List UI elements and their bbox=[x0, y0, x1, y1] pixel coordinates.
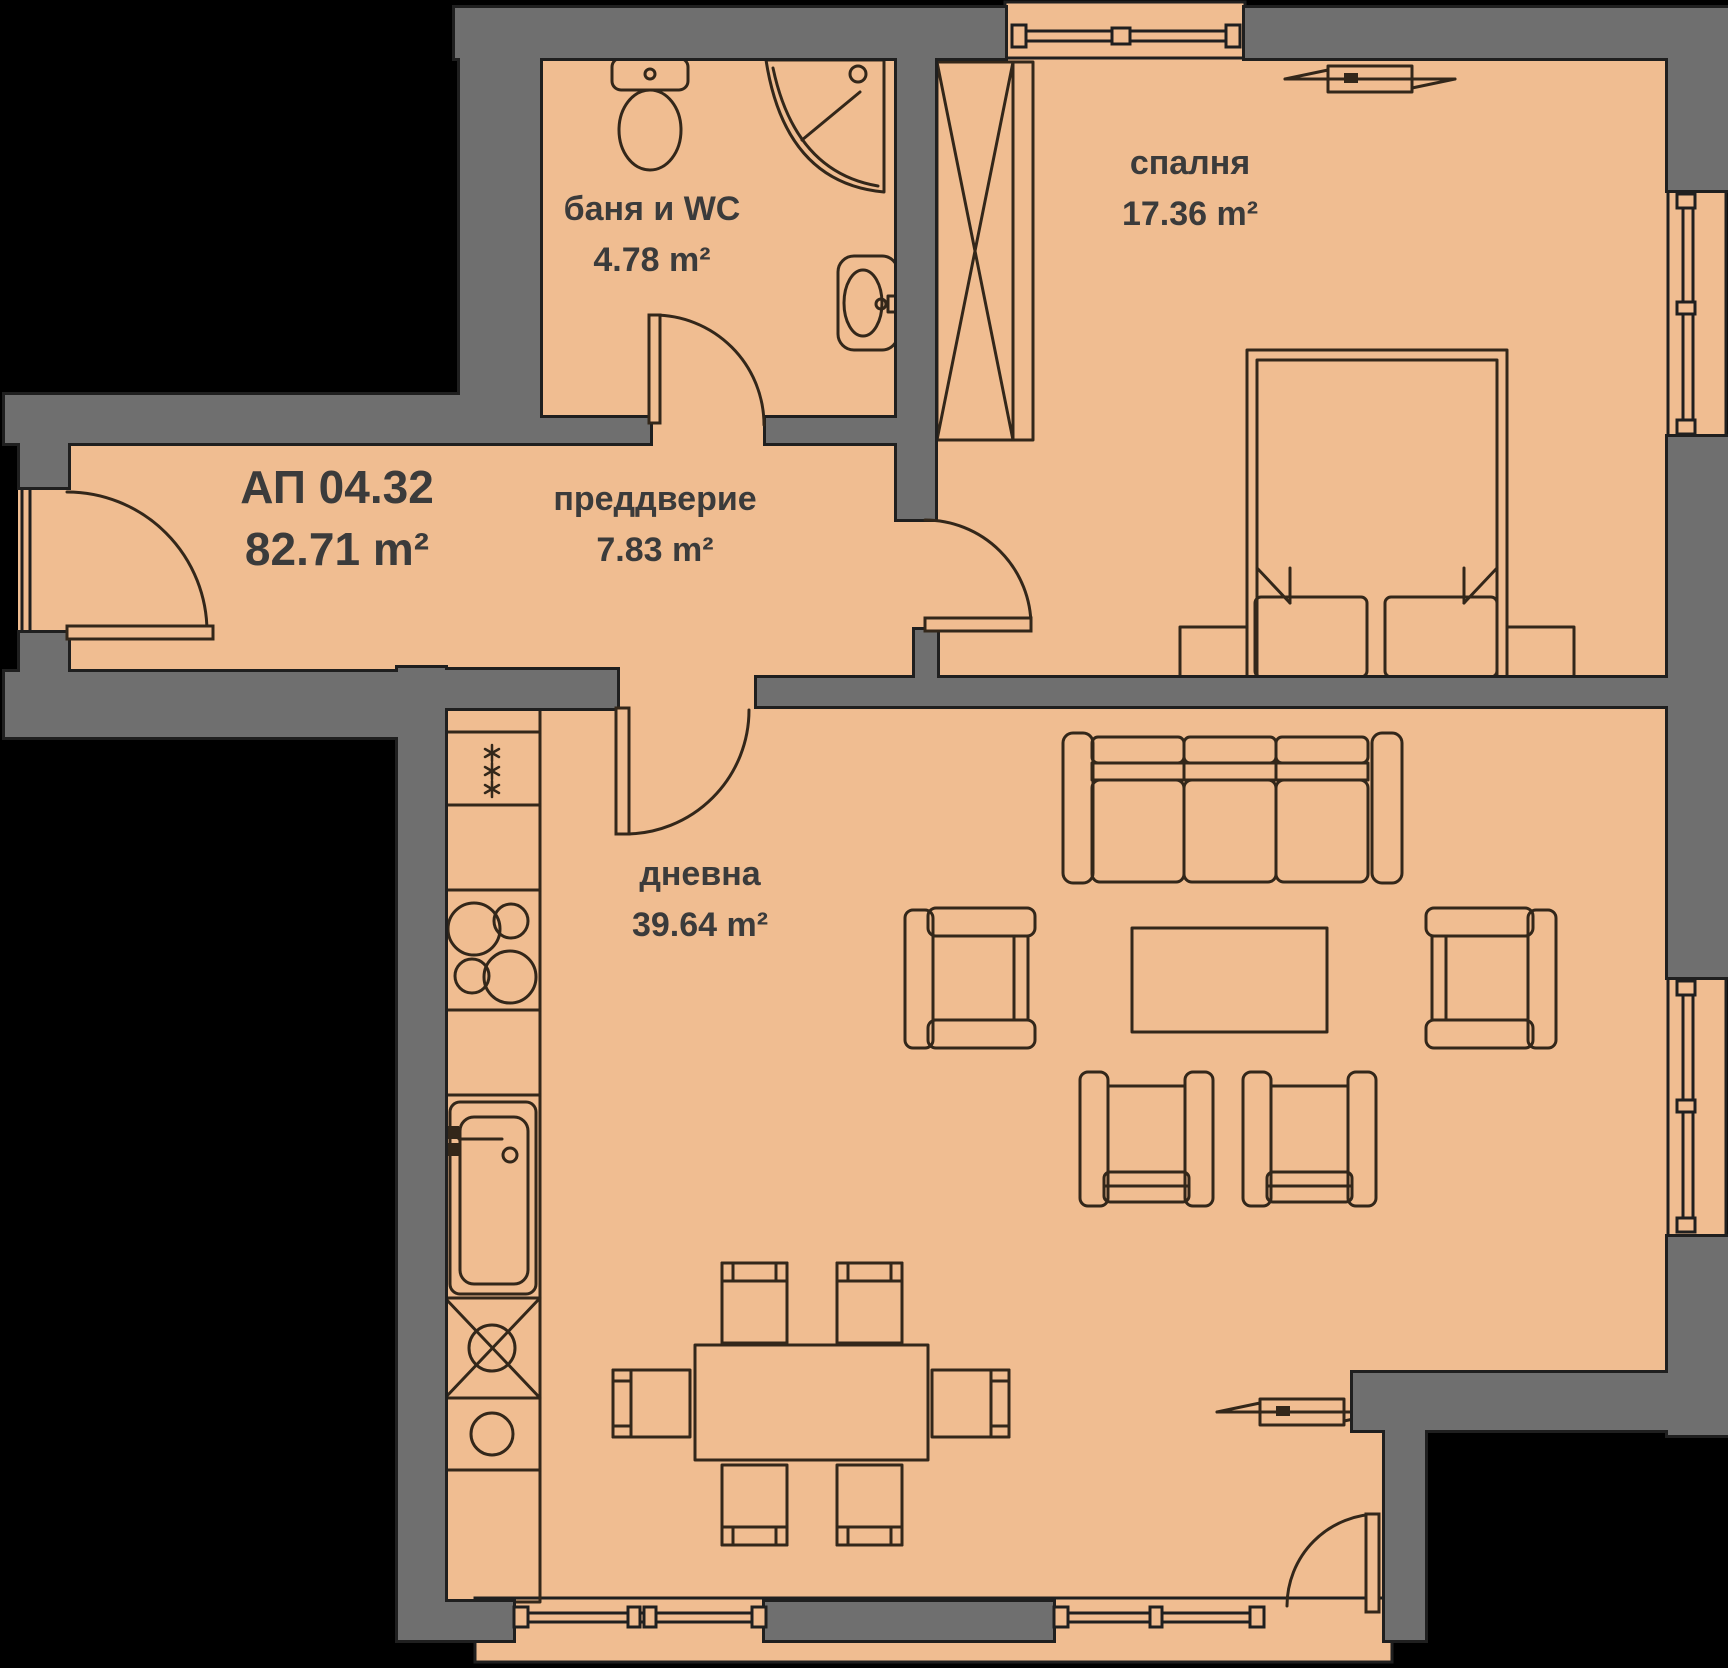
bathroom-label: баня и WC 4.78 m² bbox=[564, 184, 741, 286]
living-label: дневна 39.64 m² bbox=[632, 849, 768, 951]
room-name: дневна bbox=[632, 849, 768, 900]
room-area: 4.78 m² bbox=[564, 235, 741, 286]
hallway-floor bbox=[30, 420, 935, 700]
hallway-label: преддверие 7.83 m² bbox=[553, 474, 756, 576]
apartment-area: 82.71 m² bbox=[240, 518, 434, 580]
bedroom-floor bbox=[900, 30, 1690, 700]
room-name: преддверие bbox=[553, 474, 756, 525]
apartment-code: АП 04.32 bbox=[240, 456, 434, 518]
room-area: 39.64 m² bbox=[632, 900, 768, 951]
floor-plan-drawing bbox=[0, 0, 1728, 1668]
room-name: баня и WC bbox=[564, 184, 741, 235]
entry-threshold bbox=[18, 470, 80, 650]
floor-plan: АП 04.32 82.71 m² баня и WC 4.78 m² спал… bbox=[0, 0, 1728, 1668]
bedroom-label: спалня 17.36 m² bbox=[1122, 138, 1258, 240]
apartment-label: АП 04.32 82.71 m² bbox=[240, 456, 434, 580]
room-area: 7.83 m² bbox=[553, 525, 756, 576]
room-area: 17.36 m² bbox=[1122, 189, 1258, 240]
room-name: спалня bbox=[1122, 138, 1258, 189]
living-floor-lower bbox=[420, 660, 1400, 1630]
